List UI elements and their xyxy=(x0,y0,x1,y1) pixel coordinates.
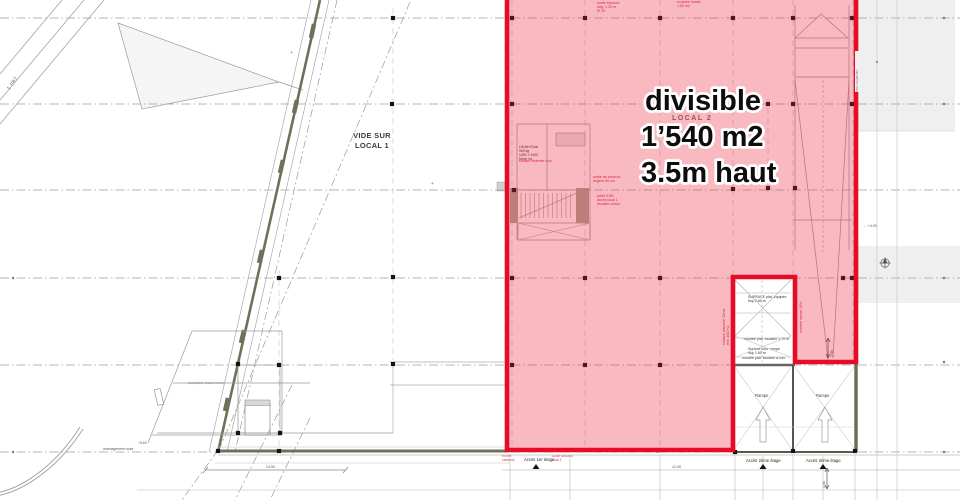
ramp-arrow-icon xyxy=(756,407,770,442)
annotation-notch-1: SURFACE plat. équipée hsp 2.60 m xyxy=(748,295,787,303)
annotation-gaine-box: Gaine techn. xyxy=(557,134,566,142)
mid-lines xyxy=(390,362,507,433)
brut-label: brut xyxy=(707,135,716,141)
annotation-level-note: → +4.00 xyxy=(863,224,877,228)
lower-left-room xyxy=(148,331,393,443)
acces-1er-label: Accès 1er étage xyxy=(524,457,554,462)
annotation-acces1-right: sortie secours local 1 xyxy=(552,454,573,462)
grid-markers xyxy=(216,16,857,454)
vide-sur-local1-label: VIDE SUR LOCAL 1 xyxy=(340,131,404,151)
annotation-side-note: surface plancher 2ème env. 160 m2 xyxy=(722,285,730,345)
tick-mark: + xyxy=(290,50,293,56)
firewall-label: mur coupe-feu xyxy=(855,51,859,92)
annotation-door-note: porte EI30 accès local 1 escalier comm. xyxy=(597,194,621,207)
bottom-structure xyxy=(0,427,960,500)
annotation-hsp-note: hsp 3.50 m xyxy=(675,142,693,146)
diagonal-wall xyxy=(0,0,410,500)
stair-treads xyxy=(519,193,577,218)
highlight-region xyxy=(507,0,856,450)
annotation-room-note: séparation locaux béton xyxy=(188,381,224,385)
floor-plan-screenshot: VIDE SUR LOCAL 1 LOCAL 2 brut Rampe Ramp… xyxy=(0,0,960,500)
annotation-acces1-left: entrée camions xyxy=(502,454,515,462)
acces-2eme-left-label: Accès 2ème étage xyxy=(746,458,781,463)
gridlines-vertical xyxy=(238,0,853,452)
annotation-dim-h2: 12.00 xyxy=(672,465,681,469)
local2-label: LOCAL 2 xyxy=(672,115,712,123)
grid-end-dots xyxy=(12,17,945,453)
annotation-stair-note-red: surface réservée tech. xyxy=(519,159,553,163)
rampe-left-label: Rampe xyxy=(755,393,769,398)
annotation-dim-v2: 4.90 xyxy=(822,468,826,488)
annotation-dim-h1: 14.50 xyxy=(266,465,275,469)
annotation-route-note: aménagement route xyxy=(103,447,133,451)
highlight-caption: divisible 1’540 m2 3.5m haut xyxy=(0,0,960,500)
annotation-notch-4: montée plat. escalier à voir xyxy=(742,356,785,360)
annotation-level-note-2: +5.60 xyxy=(138,441,147,445)
tick-mark: + xyxy=(431,181,434,187)
caption-line-3: 3.5m haut xyxy=(641,157,777,189)
annotation-dim-v1: 2.50 xyxy=(830,337,834,357)
stair-notch xyxy=(733,280,795,365)
floor-plan-linework xyxy=(0,0,960,500)
grey-zones xyxy=(118,0,960,303)
annotation-notch-3: Surface pour rampe hsp 2.60 m xyxy=(748,347,780,355)
rampe-right-label: Rampe xyxy=(816,393,830,398)
annotation-top-note: sortie secours larg. 1.20 m EI 30 xyxy=(597,1,619,14)
highlight-overlay xyxy=(0,0,960,500)
elevation-label: 1 087 xyxy=(6,76,20,92)
caption-line-2: 1’540 m2 xyxy=(641,121,764,153)
annotation-exit-note: sortie de secours largeur 90 cm xyxy=(593,175,620,183)
ramp-bays xyxy=(735,362,856,452)
access-triangle-icon xyxy=(533,464,540,469)
access-triangles xyxy=(533,464,827,469)
right-verticals xyxy=(858,0,955,500)
ramp-arrow-icon xyxy=(818,407,832,442)
north-arrow-icon xyxy=(880,258,891,269)
tick-mark: + xyxy=(171,72,174,78)
caption-line-1: divisible xyxy=(645,85,761,117)
annotation-notch-2: montée plat. escalier 1.70 m xyxy=(744,337,789,341)
annotation-top-note-2: exutoire fumée 1.50 m2 xyxy=(677,0,701,8)
annotation-stair-note: Lift-Bel Rock 900 kg 1400 × 2400 Mont. i… xyxy=(519,145,538,161)
access-triangle-icon xyxy=(760,464,767,469)
gridlines-horizontal xyxy=(0,18,960,452)
truss-detail xyxy=(793,5,852,360)
annotation-ramp-note: montée rampe 15% xyxy=(799,291,803,333)
acces-2eme-right-label: Accès 2ème étage xyxy=(806,458,841,463)
access-triangle-icon xyxy=(820,464,827,469)
stair-detail xyxy=(510,124,590,240)
